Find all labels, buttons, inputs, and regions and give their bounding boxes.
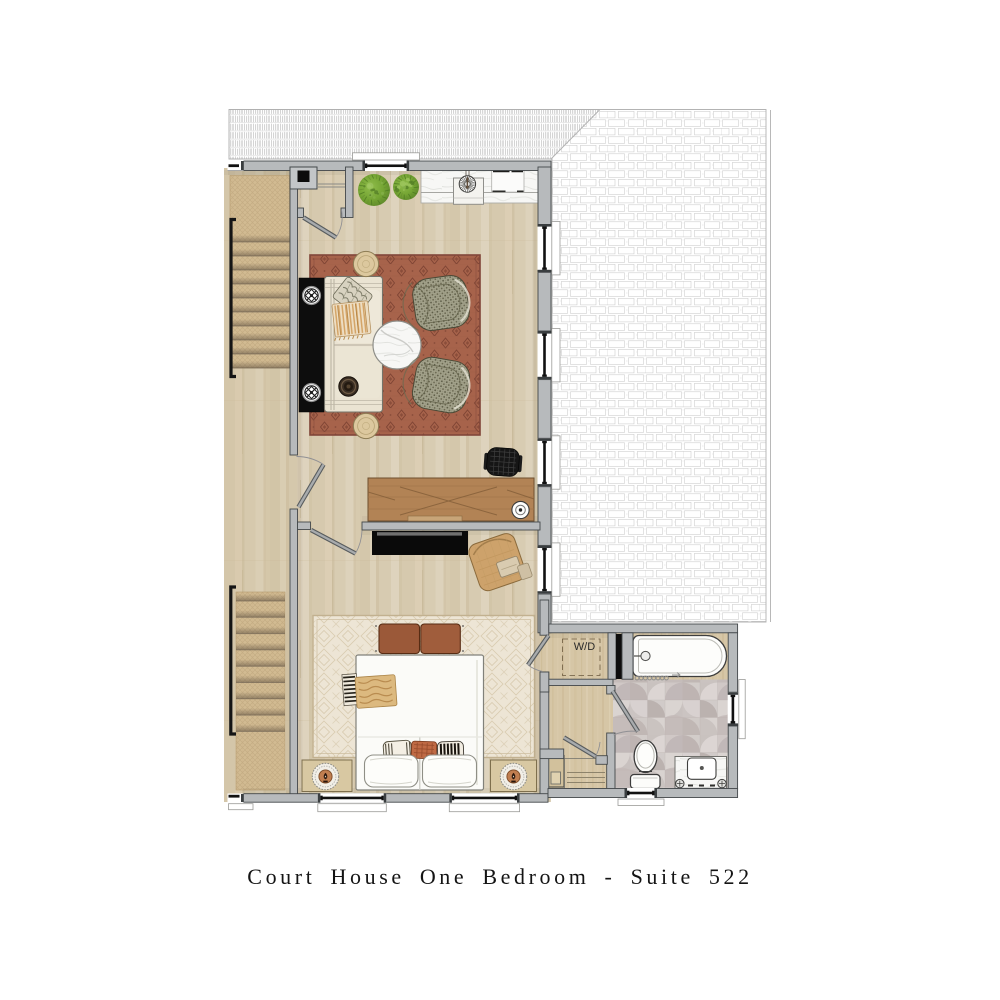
svg-text:W/D: W/D [574, 641, 595, 653]
svg-text:Court House One Bedroom - Suit: Court House One Bedroom - Suite 522 [247, 864, 752, 889]
